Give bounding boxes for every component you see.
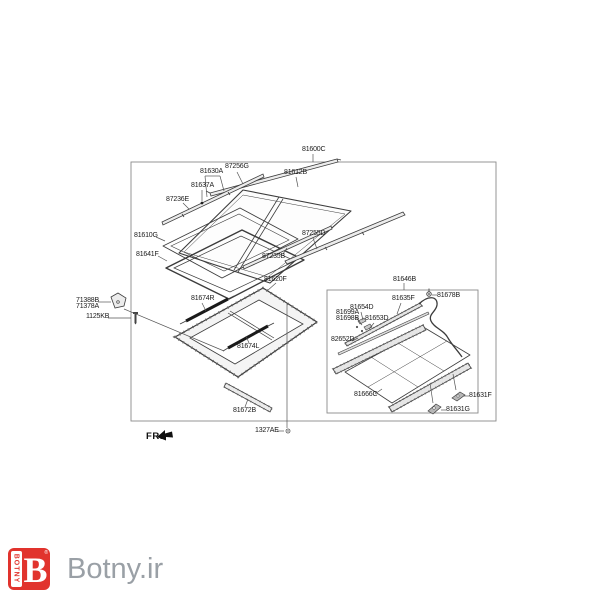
direction-label-fr: FR. [146,433,163,440]
diagram-stage: 81600C87256G81630A81612B81637A87236E8161… [0,0,600,600]
part-label-81612B: 81612B [284,169,307,176]
fastener-dot-81637A [201,202,204,205]
rivet-1327AE [286,429,290,433]
part-label-81674L: 81674L [237,343,259,350]
part-label-87255D: 87255D [302,230,325,237]
logo-vertical-text: BOTNY [13,551,20,587]
part-label-81641F: 81641F [136,251,159,258]
part-label-87235B: 87235B [262,253,285,260]
part-label-81620F: 81620F [264,276,287,283]
part-label-82652D: 82652D [331,336,354,343]
part-label-81637A: 81637A [191,182,214,189]
botny-logo[interactable]: BOTNY B ® [8,548,50,590]
bracket-71388B [111,293,126,308]
part-label-81674R: 81674R [191,295,214,302]
rear-rail [389,363,471,412]
part-label-81646B: 81646B [393,276,416,283]
part-label-81672B: 81672B [233,407,256,414]
part-label-87256G: 87256G [225,163,249,170]
footer-brand-bar: BOTNY B ® Botny.ir [0,0,600,60]
part-label-87236E: 87236E [166,196,189,203]
brand-text[interactable]: Botny.ir [67,553,163,586]
clip-81631F [452,392,465,401]
part-label-81600C: 81600C [302,146,325,153]
part-label-81678B: 81678B [437,292,460,299]
part-label-81610G: 81610G [134,232,158,239]
registered-trademark-icon: ® [44,550,48,556]
part-label-81635F: 81635F [392,295,415,302]
part-label-81653D: 81653D [365,315,388,322]
part-label-81631F: 81631F [469,392,492,399]
part-label-81630A: 81630A [200,168,223,175]
part-label-81698B: 81698B [336,315,359,322]
clip-81631G [428,404,441,414]
part-label-81666C: 81666C [354,391,377,398]
part-label-1125KB: 1125KB [86,313,109,320]
part-label-1327AE: 1327AE [255,427,279,434]
part-label-81631G: 81631G [446,406,470,413]
part-label-71378A: 71378A [76,303,99,310]
